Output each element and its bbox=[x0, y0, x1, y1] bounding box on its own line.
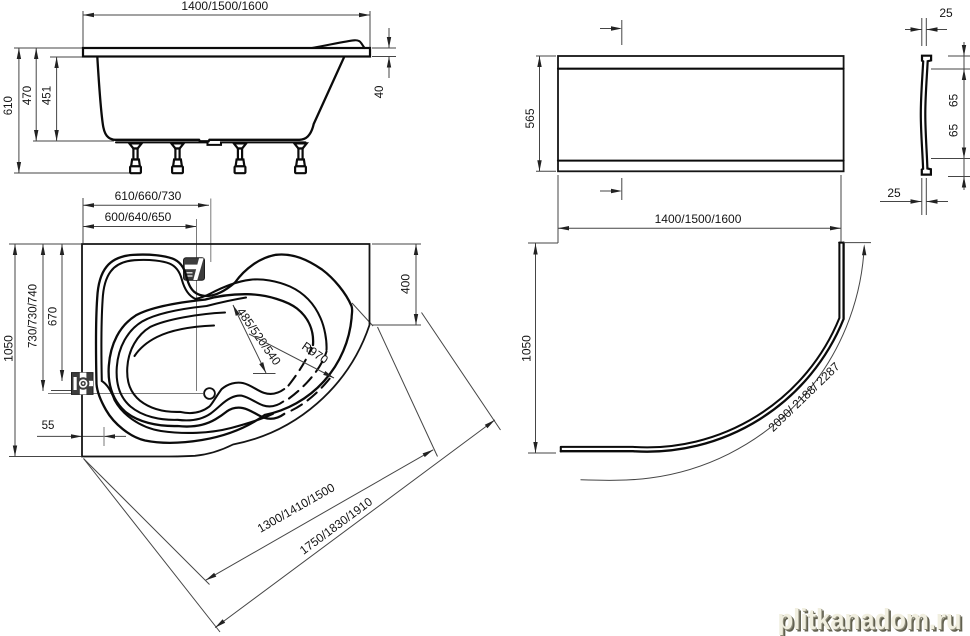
svg-text:1400/1500/1600: 1400/1500/1600 bbox=[181, 0, 268, 13]
svg-text:610: 610 bbox=[3, 96, 15, 115]
svg-text:65: 65 bbox=[947, 124, 961, 138]
svg-text:670: 670 bbox=[48, 307, 60, 326]
svg-text:1400/1500/1600: 1400/1500/1600 bbox=[655, 212, 742, 226]
svg-text:65: 65 bbox=[947, 94, 961, 108]
svg-text:451: 451 bbox=[42, 86, 54, 105]
svg-text:55: 55 bbox=[42, 420, 55, 432]
svg-text:470: 470 bbox=[22, 86, 34, 105]
svg-text:plitkanadom.ru: plitkanadom.ru bbox=[778, 604, 962, 636]
svg-text:25: 25 bbox=[939, 6, 953, 20]
svg-text:1050: 1050 bbox=[2, 335, 16, 362]
svg-text:730/730/740: 730/730/740 bbox=[28, 284, 40, 348]
svg-text:565: 565 bbox=[523, 108, 537, 128]
svg-text:40: 40 bbox=[374, 86, 386, 99]
svg-text:600/640/650: 600/640/650 bbox=[105, 210, 172, 224]
svg-text:400: 400 bbox=[399, 274, 413, 294]
svg-text:1050: 1050 bbox=[520, 335, 534, 362]
svg-text:25: 25 bbox=[887, 186, 901, 200]
